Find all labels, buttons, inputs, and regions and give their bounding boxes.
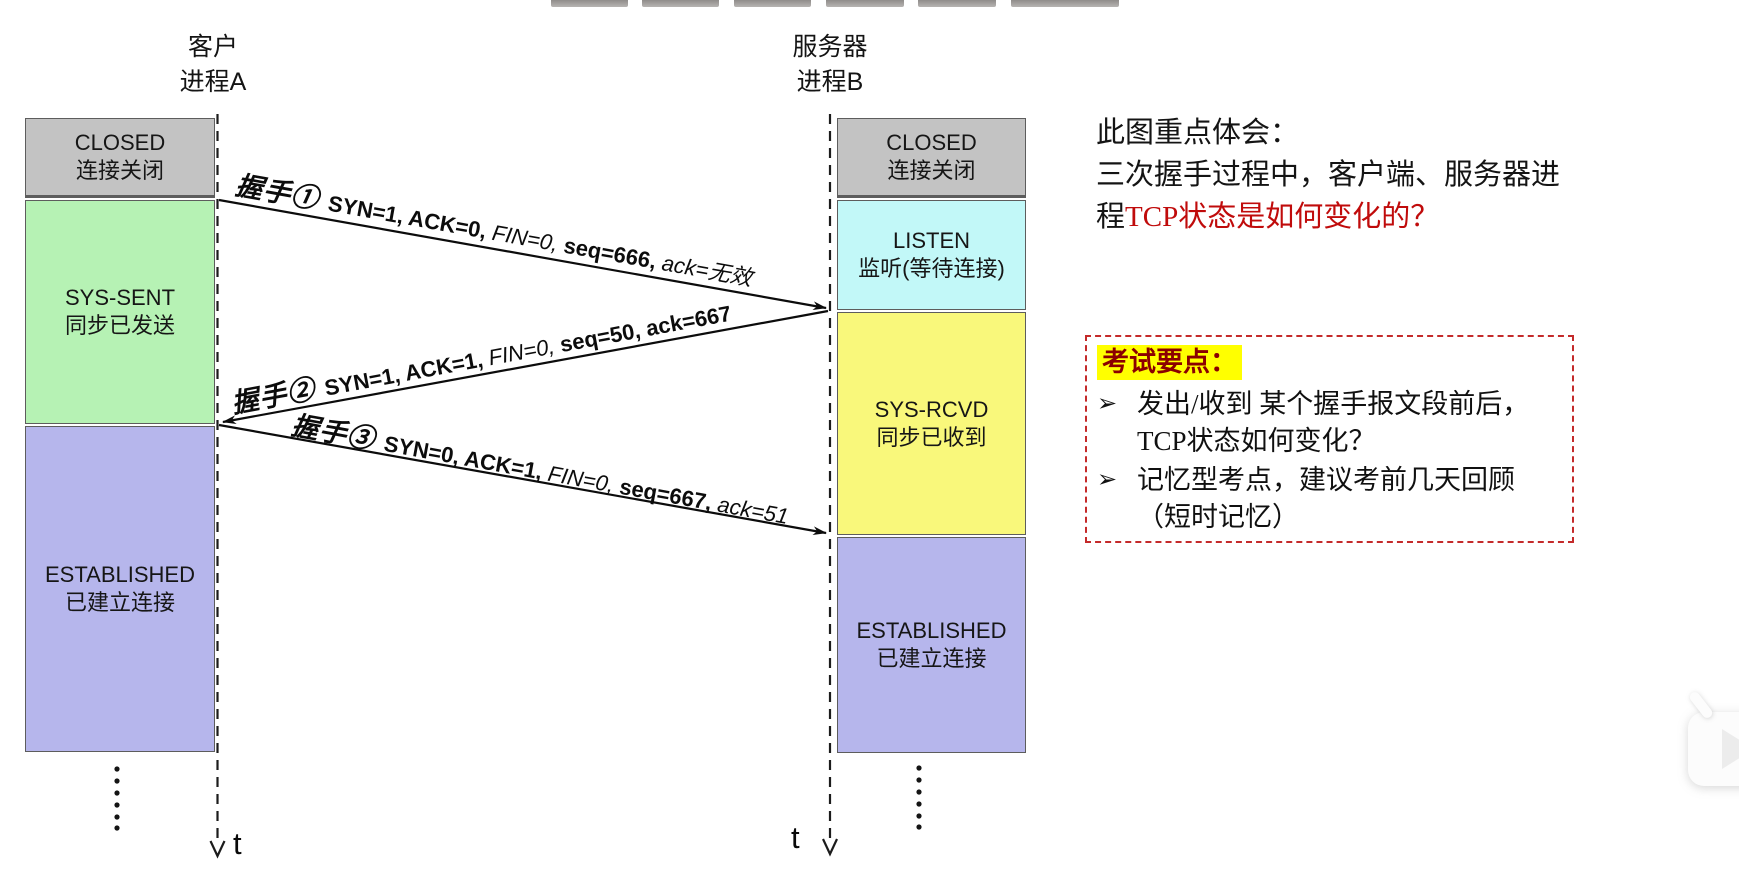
exam-point-text: 发出/收到 某个握手报文段前后，TCP状态如何变化？ — [1137, 386, 1562, 460]
client-ellipsis-dots — [114, 766, 119, 830]
key-note: 此图重点体会： 三次握手过程中，客户端、服务器进 程TCP状态是如何变化的？ — [1096, 112, 1576, 238]
handshake-1-arrow — [219, 200, 826, 308]
key-note-line3: 程TCP状态是如何变化的？ — [1096, 196, 1576, 238]
key-note-line2: 三次握手过程中，客户端、服务器进 — [1096, 154, 1576, 196]
client-time-label: t — [233, 826, 242, 862]
client-lifeline-arrowhead — [211, 841, 225, 856]
exam-point-item: ➢ 发出/收到 某个握手报文段前后，TCP状态如何变化？ — [1097, 386, 1562, 460]
exam-point-text: 记忆型考点，建议考前几天回顾（短时记忆） — [1137, 462, 1562, 536]
exam-points-box: 考试要点： ➢ 发出/收到 某个握手报文段前后，TCP状态如何变化？ ➢ 记忆型… — [1085, 335, 1574, 543]
server-time-label: t — [791, 820, 800, 856]
key-note-line1: 此图重点体会： — [1096, 112, 1576, 154]
exam-points-title: 考试要点： — [1097, 345, 1242, 380]
exam-point-item: ➢ 记忆型考点，建议考前几天回顾（短时记忆） — [1097, 462, 1562, 536]
key-note-line3-black: 程 — [1096, 201, 1125, 233]
server-lifeline-arrowhead — [823, 839, 837, 854]
server-ellipsis-dots — [916, 765, 921, 829]
exam-points-list: ➢ 发出/收到 某个握手报文段前后，TCP状态如何变化？ ➢ 记忆型考点，建议考… — [1097, 386, 1562, 536]
slide-canvas: 客户 进程A 服务器 进程B CLOSED 连接关闭 SYS-SENT 同步已发… — [0, 0, 1739, 879]
arrow-bullet-icon: ➢ — [1097, 386, 1137, 460]
arrow-bullet-icon: ➢ — [1097, 462, 1137, 536]
key-note-line3-red: TCP状态是如何变化的？ — [1125, 201, 1439, 233]
